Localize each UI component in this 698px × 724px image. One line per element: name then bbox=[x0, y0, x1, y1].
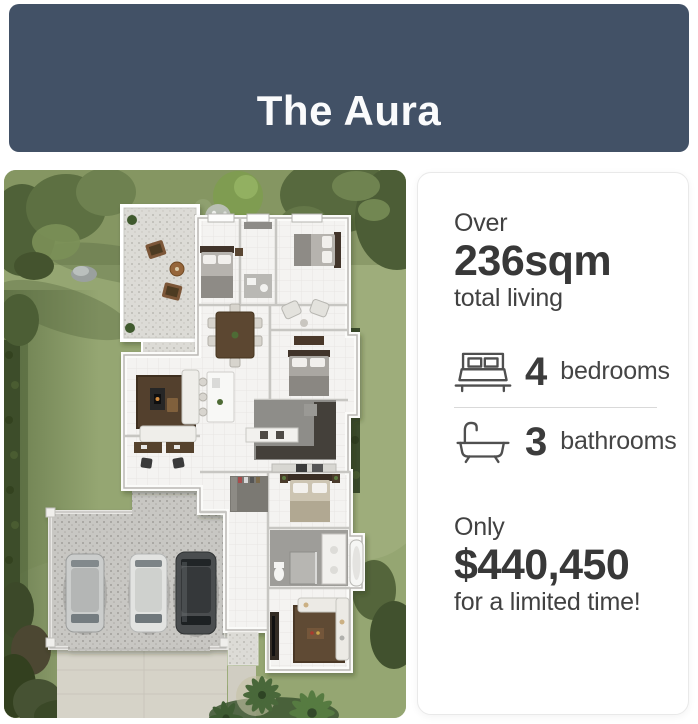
bathrooms-label: bathrooms bbox=[560, 427, 676, 456]
living-room bbox=[137, 370, 199, 442]
price-prefix: Only bbox=[454, 513, 688, 542]
car-dark bbox=[173, 551, 219, 637]
price-value: $440,450 bbox=[454, 542, 688, 588]
alfresco-terrace bbox=[122, 206, 198, 340]
size-block: Over 236sqm total living bbox=[454, 209, 688, 313]
floorplan-image bbox=[4, 170, 406, 718]
bedrooms-label: bedrooms bbox=[560, 357, 670, 386]
car-white bbox=[128, 553, 170, 635]
bathrooms-count: 3 bbox=[525, 422, 547, 462]
page-title: The Aura bbox=[257, 90, 441, 132]
price-suffix: for a limited time! bbox=[454, 588, 688, 617]
size-suffix: total living bbox=[454, 284, 688, 313]
car-silver bbox=[63, 553, 107, 635]
bed-icon bbox=[454, 349, 512, 395]
entry-porch bbox=[228, 632, 258, 665]
walk-in-robe-master bbox=[230, 476, 268, 512]
bathrooms-row: 3 bathrooms bbox=[454, 419, 688, 465]
laundry bbox=[272, 464, 336, 472]
size-prefix: Over bbox=[454, 209, 688, 238]
bedrooms-row: 4 bedrooms bbox=[454, 349, 688, 395]
title-banner: The Aura bbox=[9, 4, 689, 152]
details-card: Over 236sqm total living 4 bedrooms bbox=[417, 172, 689, 715]
price-block: Only $440,450 for a limited time! bbox=[454, 513, 688, 617]
bedroom-mid-right bbox=[288, 336, 330, 396]
bath-icon bbox=[454, 419, 512, 465]
bedroom-top-right bbox=[294, 232, 341, 268]
page: The Aura bbox=[0, 0, 698, 724]
divider bbox=[454, 407, 657, 408]
bedrooms-count: 4 bbox=[525, 352, 547, 392]
size-value: 236sqm bbox=[454, 238, 688, 284]
